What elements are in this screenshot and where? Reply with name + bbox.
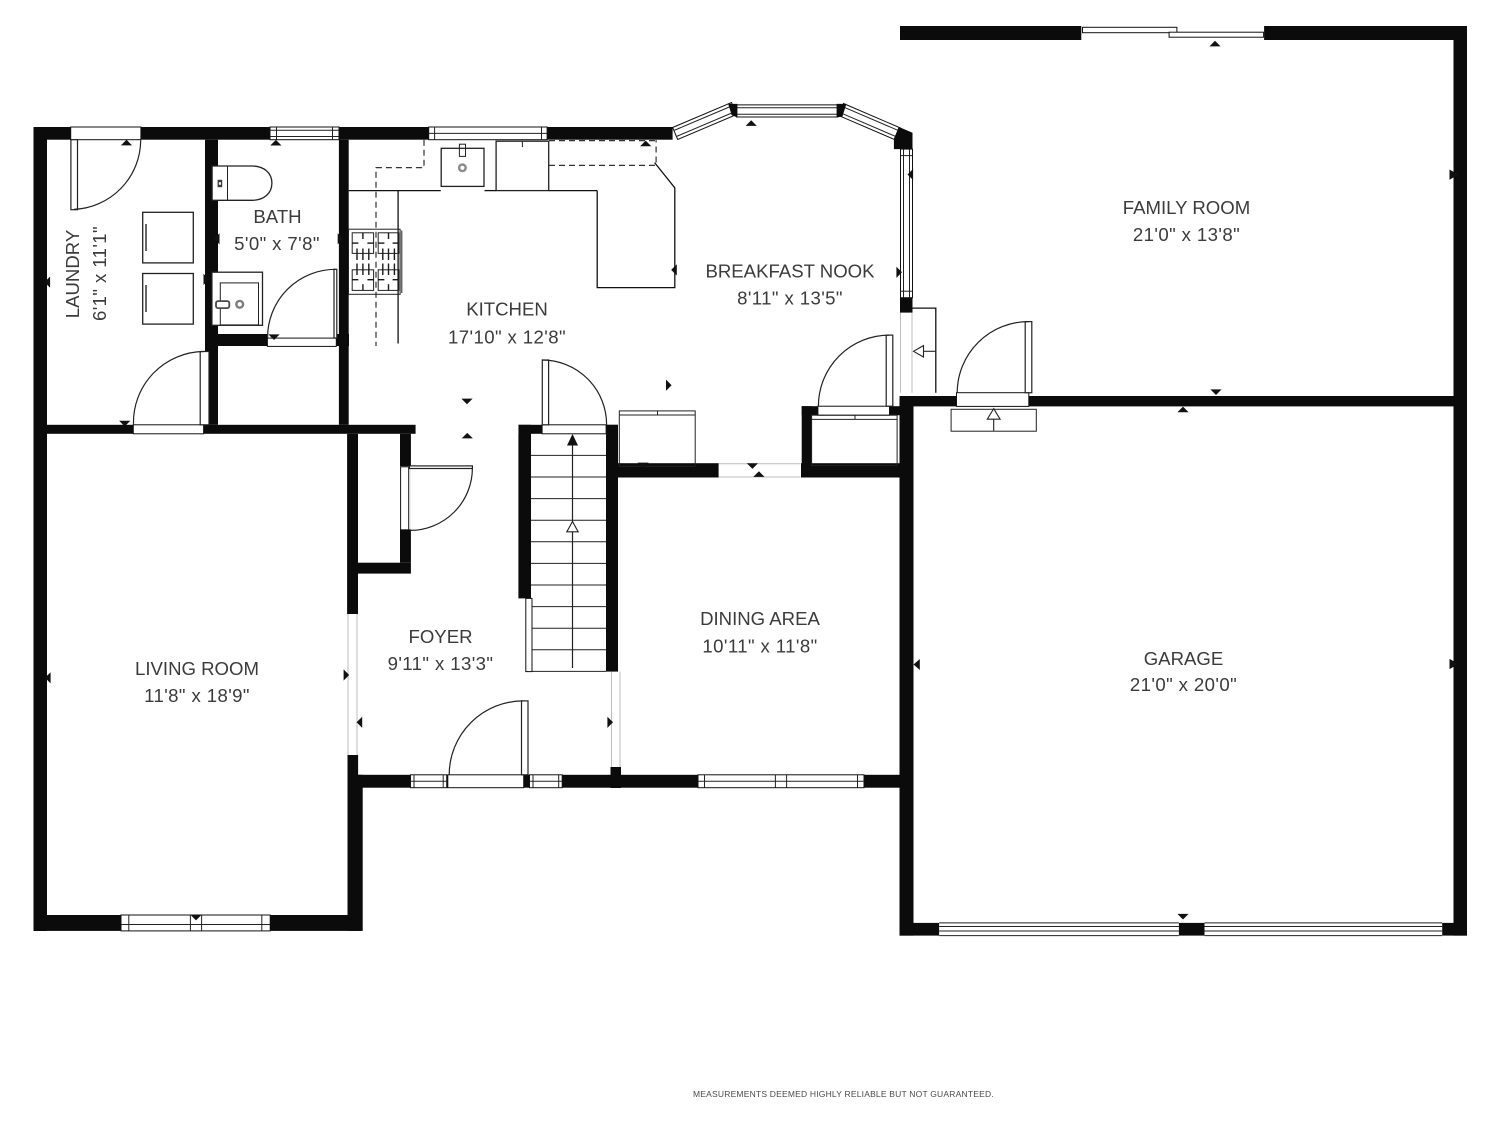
svg-text:21'0" x 20'0": 21'0" x 20'0" [1130,674,1237,695]
svg-text:11'8" x 18'9": 11'8" x 18'9" [144,685,250,706]
svg-text:MEASUREMENTS DEEMED HIGHLY REL: MEASUREMENTS DEEMED HIGHLY RELIABLE BUT … [693,1089,994,1099]
svg-text:10'11" x 11'8": 10'11" x 11'8" [702,636,817,657]
svg-text:LIVING ROOM: LIVING ROOM [135,658,259,679]
svg-text:FOYER: FOYER [408,626,472,647]
svg-text:17'10" x 12'8": 17'10" x 12'8" [448,327,566,348]
svg-text:DINING AREA: DINING AREA [700,608,820,629]
svg-text:6'1" x 11'1": 6'1" x 11'1" [89,226,110,321]
svg-text:BREAKFAST NOOK: BREAKFAST NOOK [705,261,875,282]
svg-text:9'11" x 13'3": 9'11" x 13'3" [388,653,494,674]
svg-text:21'0" x 13'8": 21'0" x 13'8" [1133,224,1240,245]
svg-text:5'0" x 7'8": 5'0" x 7'8" [234,233,320,254]
svg-text:8'11" x 13'5": 8'11" x 13'5" [737,288,843,309]
svg-text:KITCHEN: KITCHEN [466,299,548,320]
svg-text:LAUNDRY: LAUNDRY [62,230,83,319]
svg-text:FAMILY ROOM: FAMILY ROOM [1123,197,1250,218]
svg-text:GARAGE: GARAGE [1144,648,1224,669]
svg-text:BATH: BATH [253,206,301,227]
